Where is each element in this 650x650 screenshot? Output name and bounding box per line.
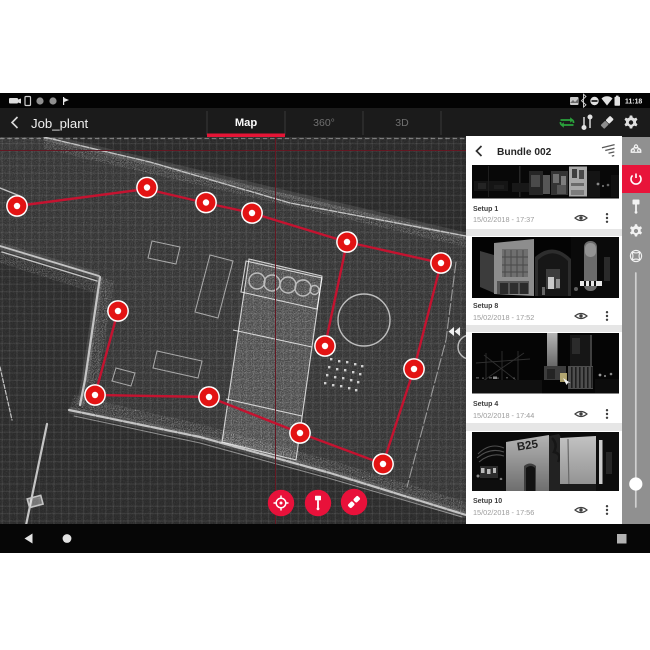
svg-text:360°: 360°	[313, 117, 335, 129]
svg-text:11:18: 11:18	[625, 99, 642, 106]
svg-text:Job_plant: Job_plant	[31, 116, 89, 131]
svg-text:3D: 3D	[395, 117, 409, 129]
svg-text:Map: Map	[235, 117, 258, 129]
svg-text:Bundle 002: Bundle 002	[497, 147, 552, 158]
